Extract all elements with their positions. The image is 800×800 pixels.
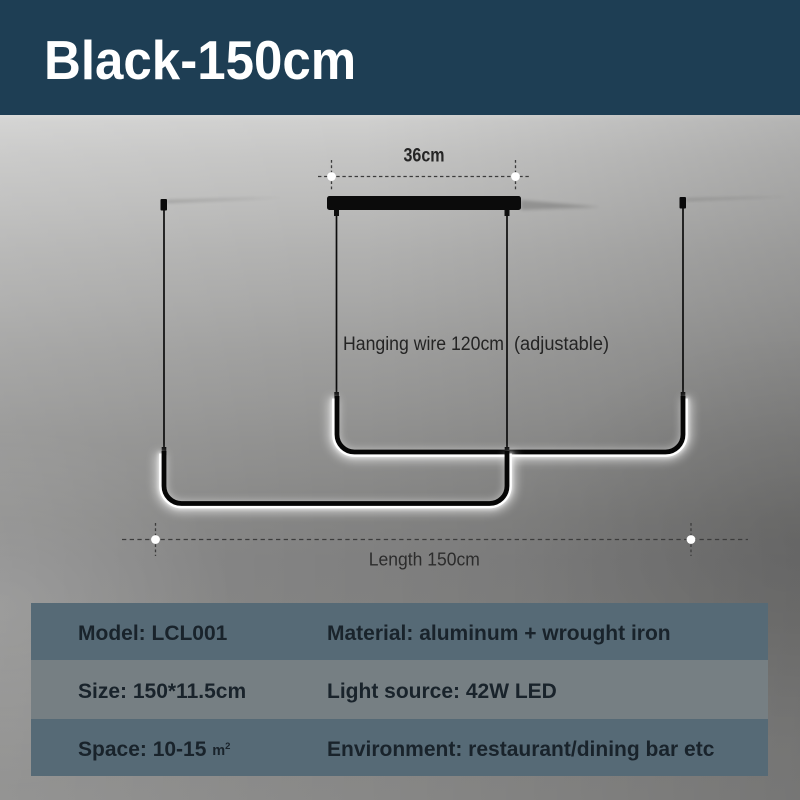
svg-text:Length 150cm: Length 150cm	[369, 549, 480, 570]
svg-text:Hanging wire 120cm: Hanging wire 120cm	[343, 334, 504, 355]
svg-text:(adjustable): (adjustable)	[514, 334, 609, 355]
svg-text:36cm: 36cm	[404, 146, 445, 167]
